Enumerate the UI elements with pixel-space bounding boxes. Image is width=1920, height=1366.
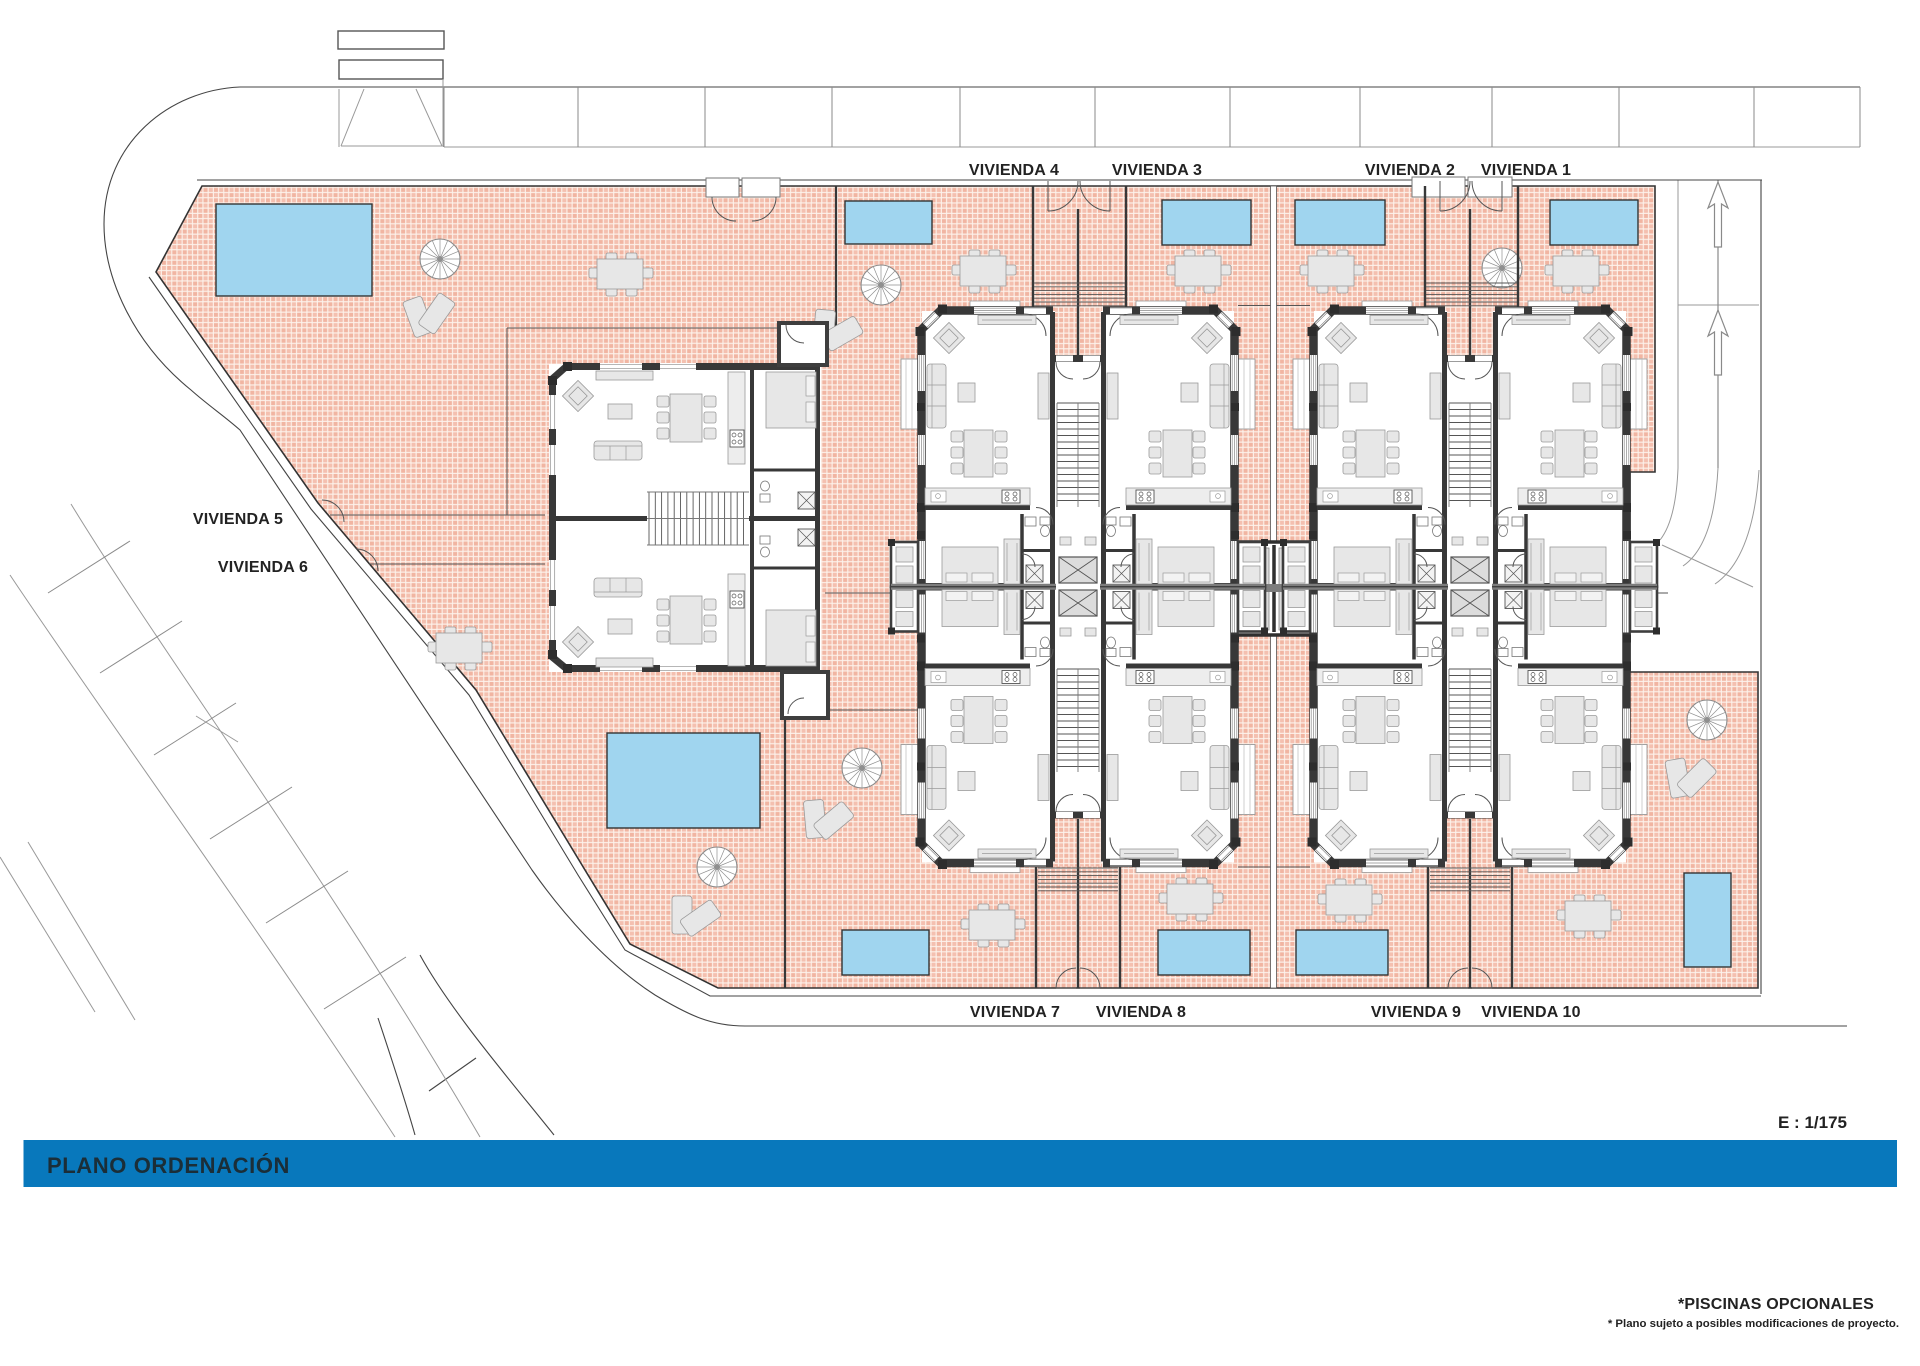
svg-text:VIVIENDA 2: VIVIENDA 2 bbox=[1365, 162, 1455, 179]
svg-text:VIVIENDA 3: VIVIENDA 3 bbox=[1112, 162, 1202, 179]
svg-text:VIVIENDA 8: VIVIENDA 8 bbox=[1096, 1004, 1186, 1021]
svg-text:E : 1/175: E : 1/175 bbox=[1778, 1113, 1847, 1132]
svg-text:VIVIENDA 10: VIVIENDA 10 bbox=[1481, 1004, 1580, 1021]
svg-text:VIVIENDA 4: VIVIENDA 4 bbox=[969, 162, 1059, 179]
svg-text:*PISCINAS OPCIONALES: *PISCINAS OPCIONALES bbox=[1678, 1296, 1874, 1313]
svg-text:VIVIENDA 5: VIVIENDA 5 bbox=[193, 511, 283, 528]
svg-text:VIVIENDA 6: VIVIENDA 6 bbox=[218, 559, 308, 576]
svg-text:VIVIENDA 1: VIVIENDA 1 bbox=[1481, 162, 1571, 179]
svg-text:PLANO ORDENACIÓN: PLANO ORDENACIÓN bbox=[47, 1153, 290, 1178]
svg-text:* Plano sujeto a posibles modi: * Plano sujeto a posibles modificaciones… bbox=[1608, 1318, 1899, 1330]
svg-text:VIVIENDA 7: VIVIENDA 7 bbox=[970, 1004, 1060, 1021]
svg-text:VIVIENDA 9: VIVIENDA 9 bbox=[1371, 1004, 1461, 1021]
